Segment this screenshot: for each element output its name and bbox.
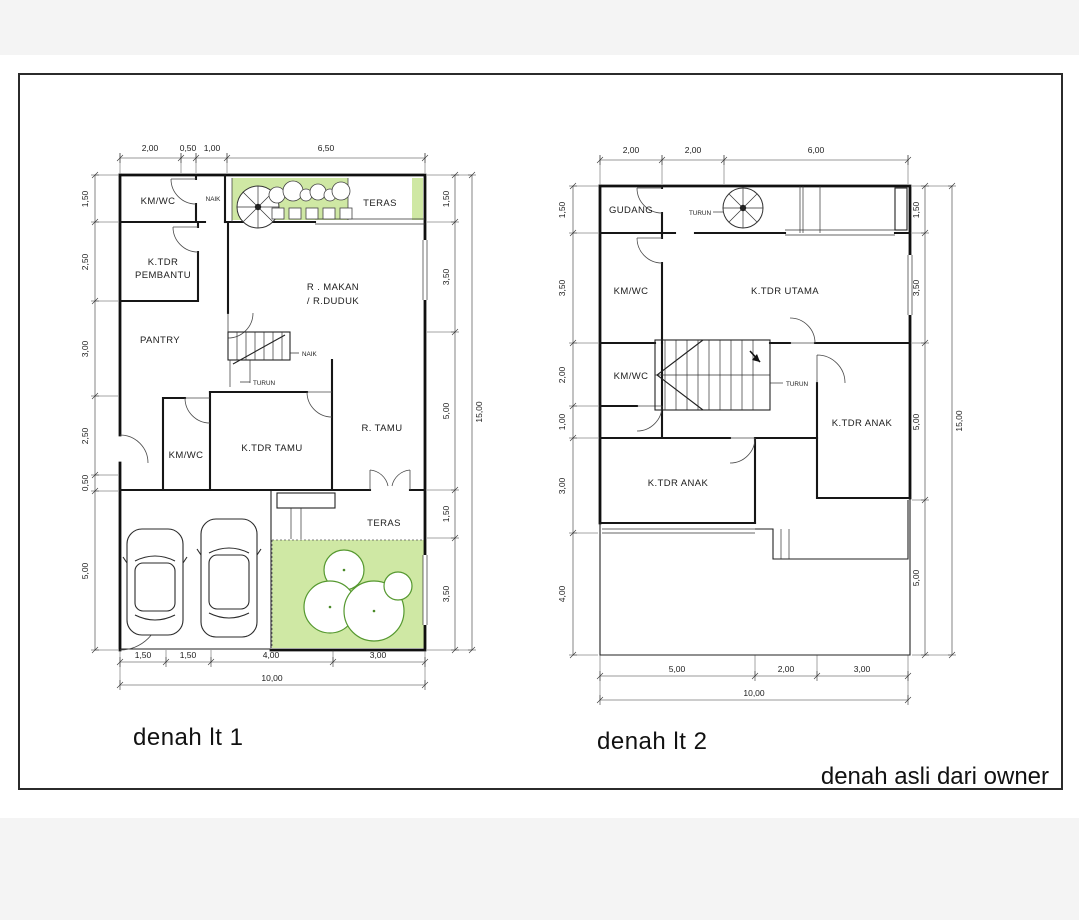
car-2: [197, 519, 261, 637]
room-label-kmwc-low: KM/WC: [614, 371, 649, 382]
room-label-teras-top: TERAS: [363, 198, 397, 209]
room-label-teras-low: TERAS: [367, 518, 401, 529]
dim-total-label: 15,00: [954, 410, 964, 432]
dim-label: 1,50: [80, 190, 90, 207]
dim-label: 2,50: [80, 427, 90, 444]
dim-label: 3,00: [557, 477, 567, 494]
dim-label: 5,00: [911, 569, 921, 586]
dim-label: 4,00: [557, 585, 567, 602]
drawing-sheet: KM/WC K.TDR PEMBANTU PANTRY R . MAKAN / …: [0, 0, 1079, 920]
dim-label: 5,00: [441, 402, 451, 419]
stair-label-naik-mid: NAIK: [302, 351, 317, 358]
bottom-gray-band: [0, 818, 1079, 920]
room-label-ktdr-pembantu: K.TDR: [148, 257, 179, 268]
dim-label: 0,50: [180, 143, 197, 153]
dim-total-label: 15,00: [474, 401, 484, 423]
dim-label: 3,00: [854, 664, 871, 674]
room-label-pantry: PANTRY: [140, 335, 180, 346]
dim-label: 2,00: [623, 145, 640, 155]
dim-label: 2,00: [557, 366, 567, 383]
dim-label: 1,50: [135, 650, 152, 660]
room-label-gudang: GUDANG: [609, 205, 653, 216]
stair-label-turun-mid: TURUN: [253, 380, 275, 387]
dim-label: 1,50: [441, 505, 451, 522]
stair-label-naik-top: NAIK: [206, 196, 221, 203]
dimension-lines: 2,00 2,00 6,00 1,50 3,50 2,00 1,00 3,00 …: [557, 145, 964, 705]
stair-label-turun-top: TURUN: [689, 210, 711, 217]
u-staircase: [655, 340, 783, 410]
room-labels: GUDANG KM/WC K.TDR UTAMA KM/WC K.TDR ANA…: [609, 205, 893, 489]
dim-label: 1,50: [911, 201, 921, 218]
dim-label: 3,00: [370, 650, 387, 660]
room-label-rtamu: R. TAMU: [362, 423, 403, 434]
top-gray-band: [0, 0, 1079, 55]
room-label-ktdr-anak-right: K.TDR ANAK: [832, 418, 893, 429]
dim-label: 3,50: [441, 268, 451, 285]
dim-label: 1,50: [441, 190, 451, 207]
interior-walls: [600, 186, 910, 523]
dim-label: 3,00: [80, 340, 90, 357]
dim-label: 3,50: [441, 585, 451, 602]
floorplan-level1: KM/WC K.TDR PEMBANTU PANTRY R . MAKAN / …: [75, 115, 495, 715]
floorplan-level2: GUDANG KM/WC K.TDR UTAMA KM/WC K.TDR ANA…: [545, 115, 995, 725]
room-label-kmwc-top: KM/WC: [141, 196, 176, 207]
dim-label: 1,50: [557, 201, 567, 218]
dim-label: 4,00: [263, 650, 280, 660]
dim-label: 2,00: [685, 145, 702, 155]
room-label-ktdr-pembantu-2: PEMBANTU: [135, 270, 191, 281]
straight-staircase: [228, 332, 299, 387]
spiral-staircase: [713, 188, 763, 228]
entry-steps: [277, 493, 335, 539]
plan1-title: denah lt 1: [133, 724, 243, 752]
room-label-kmwc-low: KM/WC: [169, 450, 204, 461]
car-1: [123, 529, 187, 635]
dim-label: 5,00: [669, 664, 686, 674]
plan2-title: denah lt 2: [597, 728, 707, 756]
dim-label: 6,50: [318, 143, 335, 153]
room-label-ktdr-anak-left: K.TDR ANAK: [648, 478, 709, 489]
dim-label: 1,50: [180, 650, 197, 660]
room-label-rmakan: R . MAKAN: [307, 282, 359, 293]
dim-label: 5,00: [80, 562, 90, 579]
stair-label-turun-mid: TURUN: [786, 381, 808, 388]
room-label-kmwc-up: KM/WC: [614, 286, 649, 297]
dim-label: 3,50: [557, 279, 567, 296]
door-swings: [637, 188, 845, 463]
dim-label: 2,00: [142, 143, 159, 153]
dim-label: 1,00: [557, 413, 567, 430]
dim-total-label: 10,00: [261, 673, 283, 683]
room-labels: KM/WC K.TDR PEMBANTU PANTRY R . MAKAN / …: [135, 196, 402, 529]
room-label-rduduk: / R.DUDUK: [307, 296, 359, 307]
dim-label: 5,00: [911, 413, 921, 430]
owner-note: denah asli dari owner: [821, 763, 1049, 791]
room-label-ktdr-utama: K.TDR UTAMA: [751, 286, 819, 297]
dim-label: 3,50: [911, 279, 921, 296]
room-label-ktdr-tamu: K.TDR TAMU: [241, 443, 302, 454]
paver-steps: [272, 208, 352, 219]
dim-label: 6,00: [808, 145, 825, 155]
dim-label: 0,50: [80, 474, 90, 491]
dim-label: 2,50: [80, 253, 90, 270]
dim-label: 1,00: [204, 143, 221, 153]
dim-label: 2,00: [778, 664, 795, 674]
dim-total-label: 10,00: [743, 688, 765, 698]
